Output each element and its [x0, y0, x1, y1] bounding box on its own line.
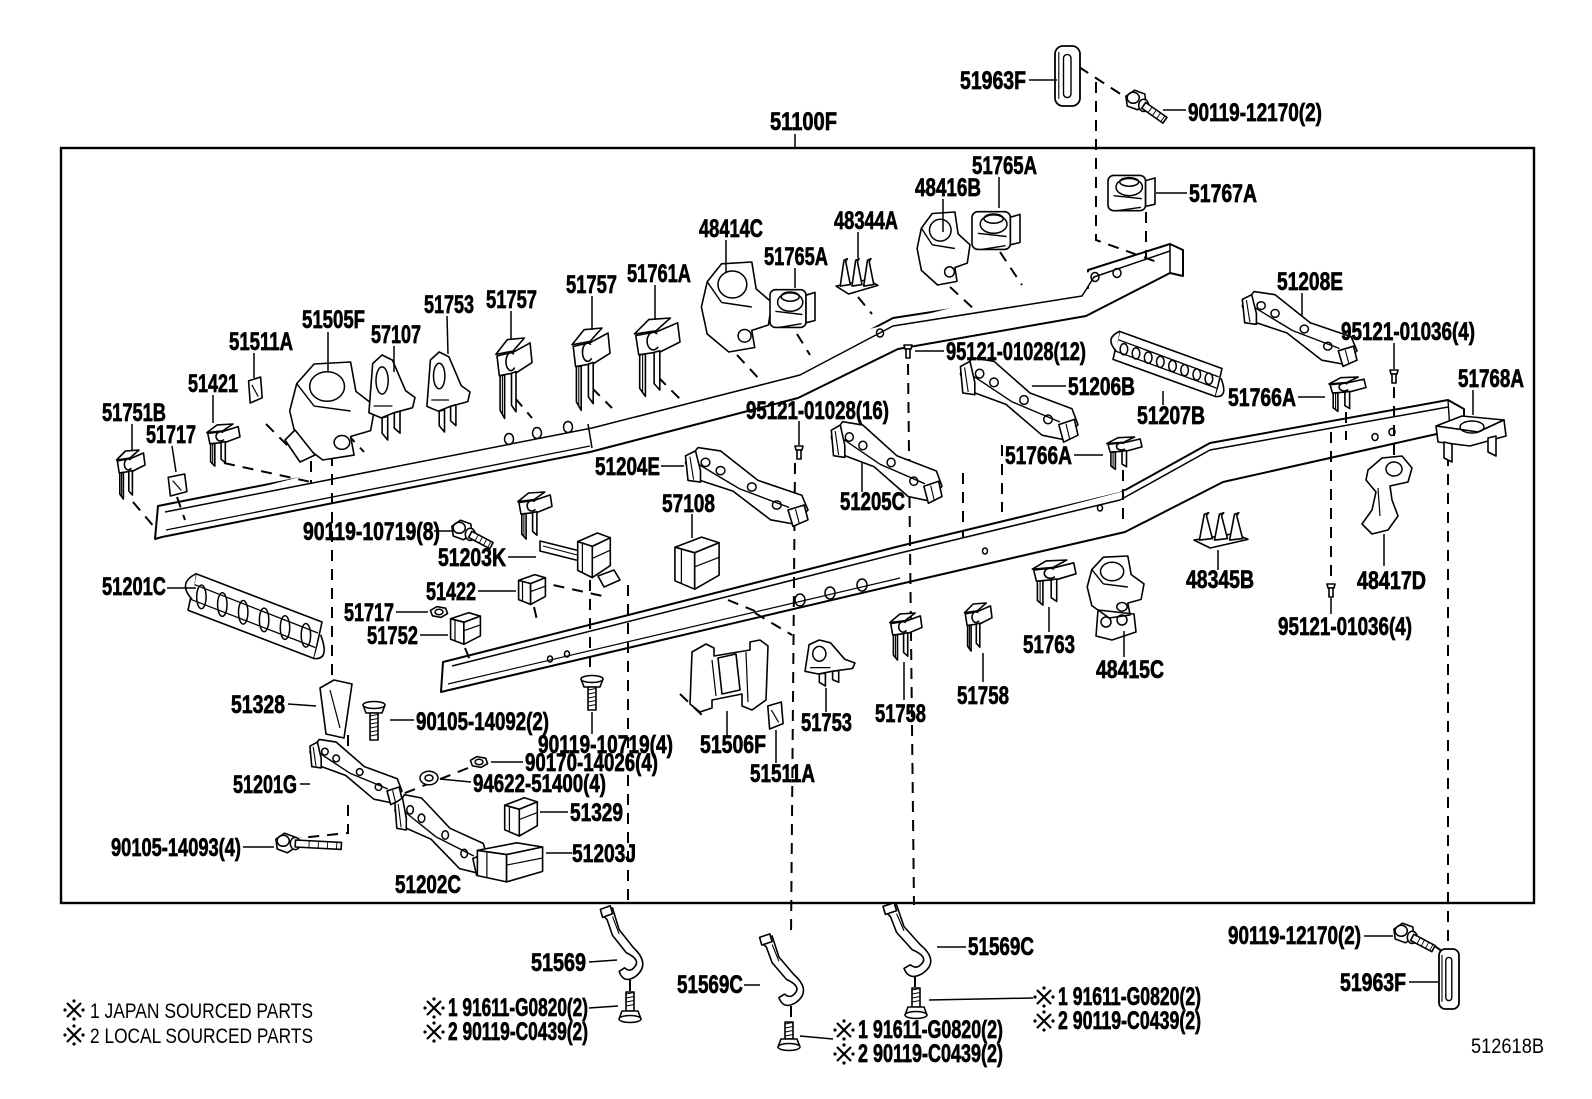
svg-text:51758: 51758	[957, 682, 1009, 710]
svg-text:90105-14093(4): 90105-14093(4)	[111, 834, 241, 862]
svg-text:2 90119-C0439(2): 2 90119-C0439(2)	[1058, 1007, 1201, 1035]
svg-text:51203J: 51203J	[572, 840, 636, 868]
svg-text:95121-01036(4): 95121-01036(4)	[1278, 613, 1412, 641]
svg-text:51207B: 51207B	[1137, 402, 1205, 430]
svg-text:51505F: 51505F	[302, 306, 365, 334]
svg-text:95121-01028(12): 95121-01028(12)	[946, 338, 1086, 366]
svg-text:51963F: 51963F	[960, 67, 1026, 95]
svg-text:48417D: 48417D	[1357, 567, 1426, 595]
svg-text:51765A: 51765A	[764, 243, 828, 271]
svg-text:51963F: 51963F	[1340, 969, 1406, 997]
svg-text:48414C: 48414C	[699, 215, 763, 243]
svg-text:51100F: 51100F	[770, 108, 837, 136]
svg-text:51766A: 51766A	[1228, 384, 1296, 412]
svg-text:51765A: 51765A	[972, 152, 1037, 180]
svg-text:51202C: 51202C	[395, 871, 461, 899]
svg-text:94622-51400(4): 94622-51400(4)	[473, 770, 606, 798]
svg-text:51208E: 51208E	[1277, 268, 1343, 296]
svg-text:90105-14092(2): 90105-14092(2)	[416, 708, 549, 736]
svg-text:51753: 51753	[801, 709, 852, 737]
svg-text:48415C: 48415C	[1096, 656, 1164, 684]
svg-text:51569: 51569	[531, 949, 586, 977]
svg-text:51421: 51421	[188, 370, 238, 398]
svg-text:51201C: 51201C	[102, 573, 166, 601]
svg-text:1 JAPAN SOURCED PARTS: 1 JAPAN SOURCED PARTS	[90, 1000, 313, 1023]
svg-text:51328: 51328	[231, 691, 285, 719]
svg-text:51766A: 51766A	[1005, 442, 1072, 470]
svg-text:51757: 51757	[566, 271, 617, 299]
svg-text:48416B: 48416B	[915, 174, 981, 202]
svg-text:51717: 51717	[146, 421, 196, 449]
svg-text:51511A: 51511A	[750, 760, 815, 788]
svg-text:51753: 51753	[424, 291, 474, 319]
svg-text:51758: 51758	[875, 700, 926, 728]
svg-text:51203K: 51203K	[438, 544, 506, 572]
svg-text:51205C: 51205C	[840, 488, 905, 516]
svg-text:57108: 57108	[662, 490, 715, 518]
svg-text:51511A: 51511A	[229, 328, 293, 356]
svg-text:51201G: 51201G	[233, 771, 297, 799]
svg-text:51767A: 51767A	[1189, 180, 1257, 208]
svg-text:51506F: 51506F	[700, 731, 766, 759]
svg-text:2 90119-C0439(2): 2 90119-C0439(2)	[448, 1018, 588, 1046]
svg-text:51329: 51329	[570, 799, 623, 827]
svg-text:51757: 51757	[486, 286, 537, 314]
svg-text:90119-12170(2): 90119-12170(2)	[1228, 922, 1361, 950]
svg-text:95121-01028(16): 95121-01028(16)	[746, 397, 889, 425]
svg-text:51569C: 51569C	[677, 971, 743, 999]
svg-text:2 LOCAL SOURCED PARTS: 2 LOCAL SOURCED PARTS	[90, 1025, 313, 1048]
svg-text:51763: 51763	[1023, 631, 1075, 659]
svg-text:51204E: 51204E	[595, 453, 660, 481]
svg-text:51768A: 51768A	[1458, 365, 1524, 393]
svg-text:48344A: 48344A	[834, 207, 898, 235]
svg-text:48345B: 48345B	[1186, 566, 1254, 594]
svg-text:51569C: 51569C	[968, 933, 1034, 961]
svg-text:51752: 51752	[367, 622, 418, 650]
svg-text:2 90119-C0439(2): 2 90119-C0439(2)	[858, 1040, 1003, 1068]
svg-text:95121-01036(4): 95121-01036(4)	[1341, 318, 1475, 346]
svg-text:90119-10719(8): 90119-10719(8)	[303, 518, 440, 546]
svg-text:51422: 51422	[426, 578, 476, 606]
svg-text:90119-12170(2): 90119-12170(2)	[1188, 99, 1322, 127]
svg-text:512618B: 512618B	[1471, 1035, 1544, 1058]
svg-text:51206B: 51206B	[1068, 373, 1135, 401]
svg-text:57107: 57107	[371, 321, 421, 349]
svg-text:51761A: 51761A	[627, 260, 691, 288]
